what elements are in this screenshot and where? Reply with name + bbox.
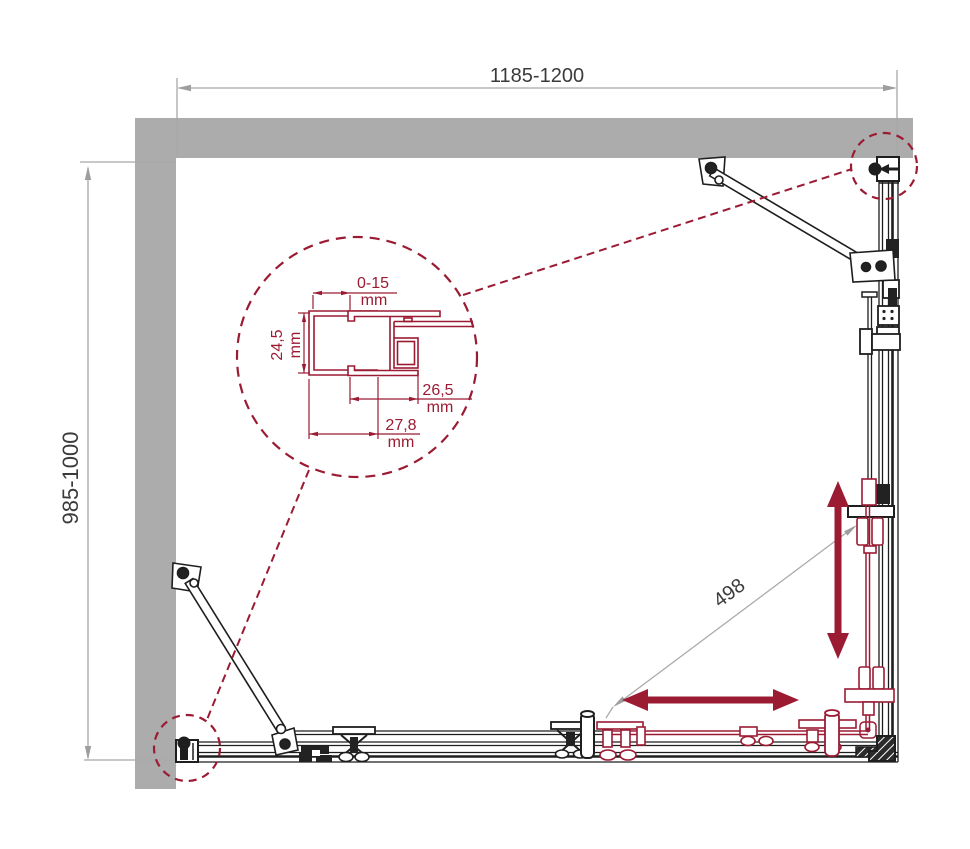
- arrowhead-bottom: [85, 746, 91, 760]
- pivot-bolt: [706, 163, 717, 174]
- door-roller-carriage: [597, 722, 645, 760]
- top-wall: [135, 118, 913, 158]
- square-tube-inner: [398, 342, 415, 365]
- roller-clamp-bar: [848, 506, 894, 517]
- pivot-hole: [190, 579, 198, 587]
- pivot-hole: [277, 725, 286, 734]
- wall-profile-bottom-left: [176, 737, 198, 763]
- arrowhead-lower: [613, 696, 626, 707]
- profile-knob: [178, 737, 191, 750]
- door-travel-label: 498: [709, 574, 749, 612]
- leader-line: [463, 169, 852, 295]
- corner-fittings: [856, 736, 895, 761]
- detail-inner-value: 26,5: [422, 382, 453, 399]
- glass-clamp: [860, 329, 872, 354]
- pivot-bolt: [280, 739, 290, 749]
- detail-gap-unit: mm: [361, 292, 388, 309]
- wall-profile-outer: [309, 311, 378, 375]
- pivot-bolt: [862, 263, 871, 272]
- dimension-line: [616, 527, 854, 705]
- door-roller-carriage: [845, 667, 894, 715]
- detail-inner-unit: mm: [427, 399, 454, 416]
- profile-cross-section: [309, 311, 473, 376]
- shower-enclosure-plan: 1185-1200 985-1000 498: [0, 0, 970, 849]
- left-wall: [135, 118, 176, 789]
- adjust-profile-top: [348, 311, 440, 321]
- depth-dimension-label: 985-1000: [58, 432, 83, 525]
- sliding-doors: [597, 479, 894, 760]
- slide-arrow-vertical: [827, 481, 849, 659]
- detail-outer-value: 27,8: [385, 417, 416, 434]
- rail-fitting: [299, 746, 332, 762]
- pivot-bolt: [178, 568, 189, 579]
- arrowhead-right: [883, 85, 897, 91]
- rail-adjuster: [878, 306, 899, 325]
- glass-bracket: [850, 250, 895, 282]
- slide-arrow-horizontal: [622, 689, 799, 711]
- technical-drawing-page: 1185-1200 985-1000 498: [0, 0, 970, 849]
- wall-profile-top-right: [869, 157, 900, 183]
- pivot-hole: [715, 176, 723, 184]
- support-arm-top-right: [699, 157, 895, 282]
- arrowhead-left: [177, 85, 191, 91]
- glass-clamp: [872, 334, 900, 350]
- detail-height-unit: mm: [287, 332, 304, 359]
- arrowhead-top: [85, 166, 91, 180]
- glass-gasket: [404, 318, 412, 322]
- detail-gap-value: 0-15: [357, 275, 389, 292]
- detail-outer-unit: mm: [388, 434, 415, 451]
- pivot-bolt: [876, 261, 886, 271]
- glass-top-cap: [862, 292, 877, 297]
- width-dimension-label: 1185-1200: [490, 65, 584, 87]
- arrowhead-upper: [844, 525, 857, 536]
- support-arm-bottom-left: [172, 563, 298, 755]
- support-bar: [710, 168, 867, 266]
- detail-height-value: 24,5: [269, 329, 286, 360]
- door-handle-knob: [825, 710, 839, 756]
- support-bar: [185, 579, 285, 732]
- door-handle-knob: [581, 711, 594, 758]
- door-travel-dimension: [606, 518, 866, 718]
- wall-profile-inner: [314, 316, 378, 370]
- dimension-tick: [606, 707, 613, 718]
